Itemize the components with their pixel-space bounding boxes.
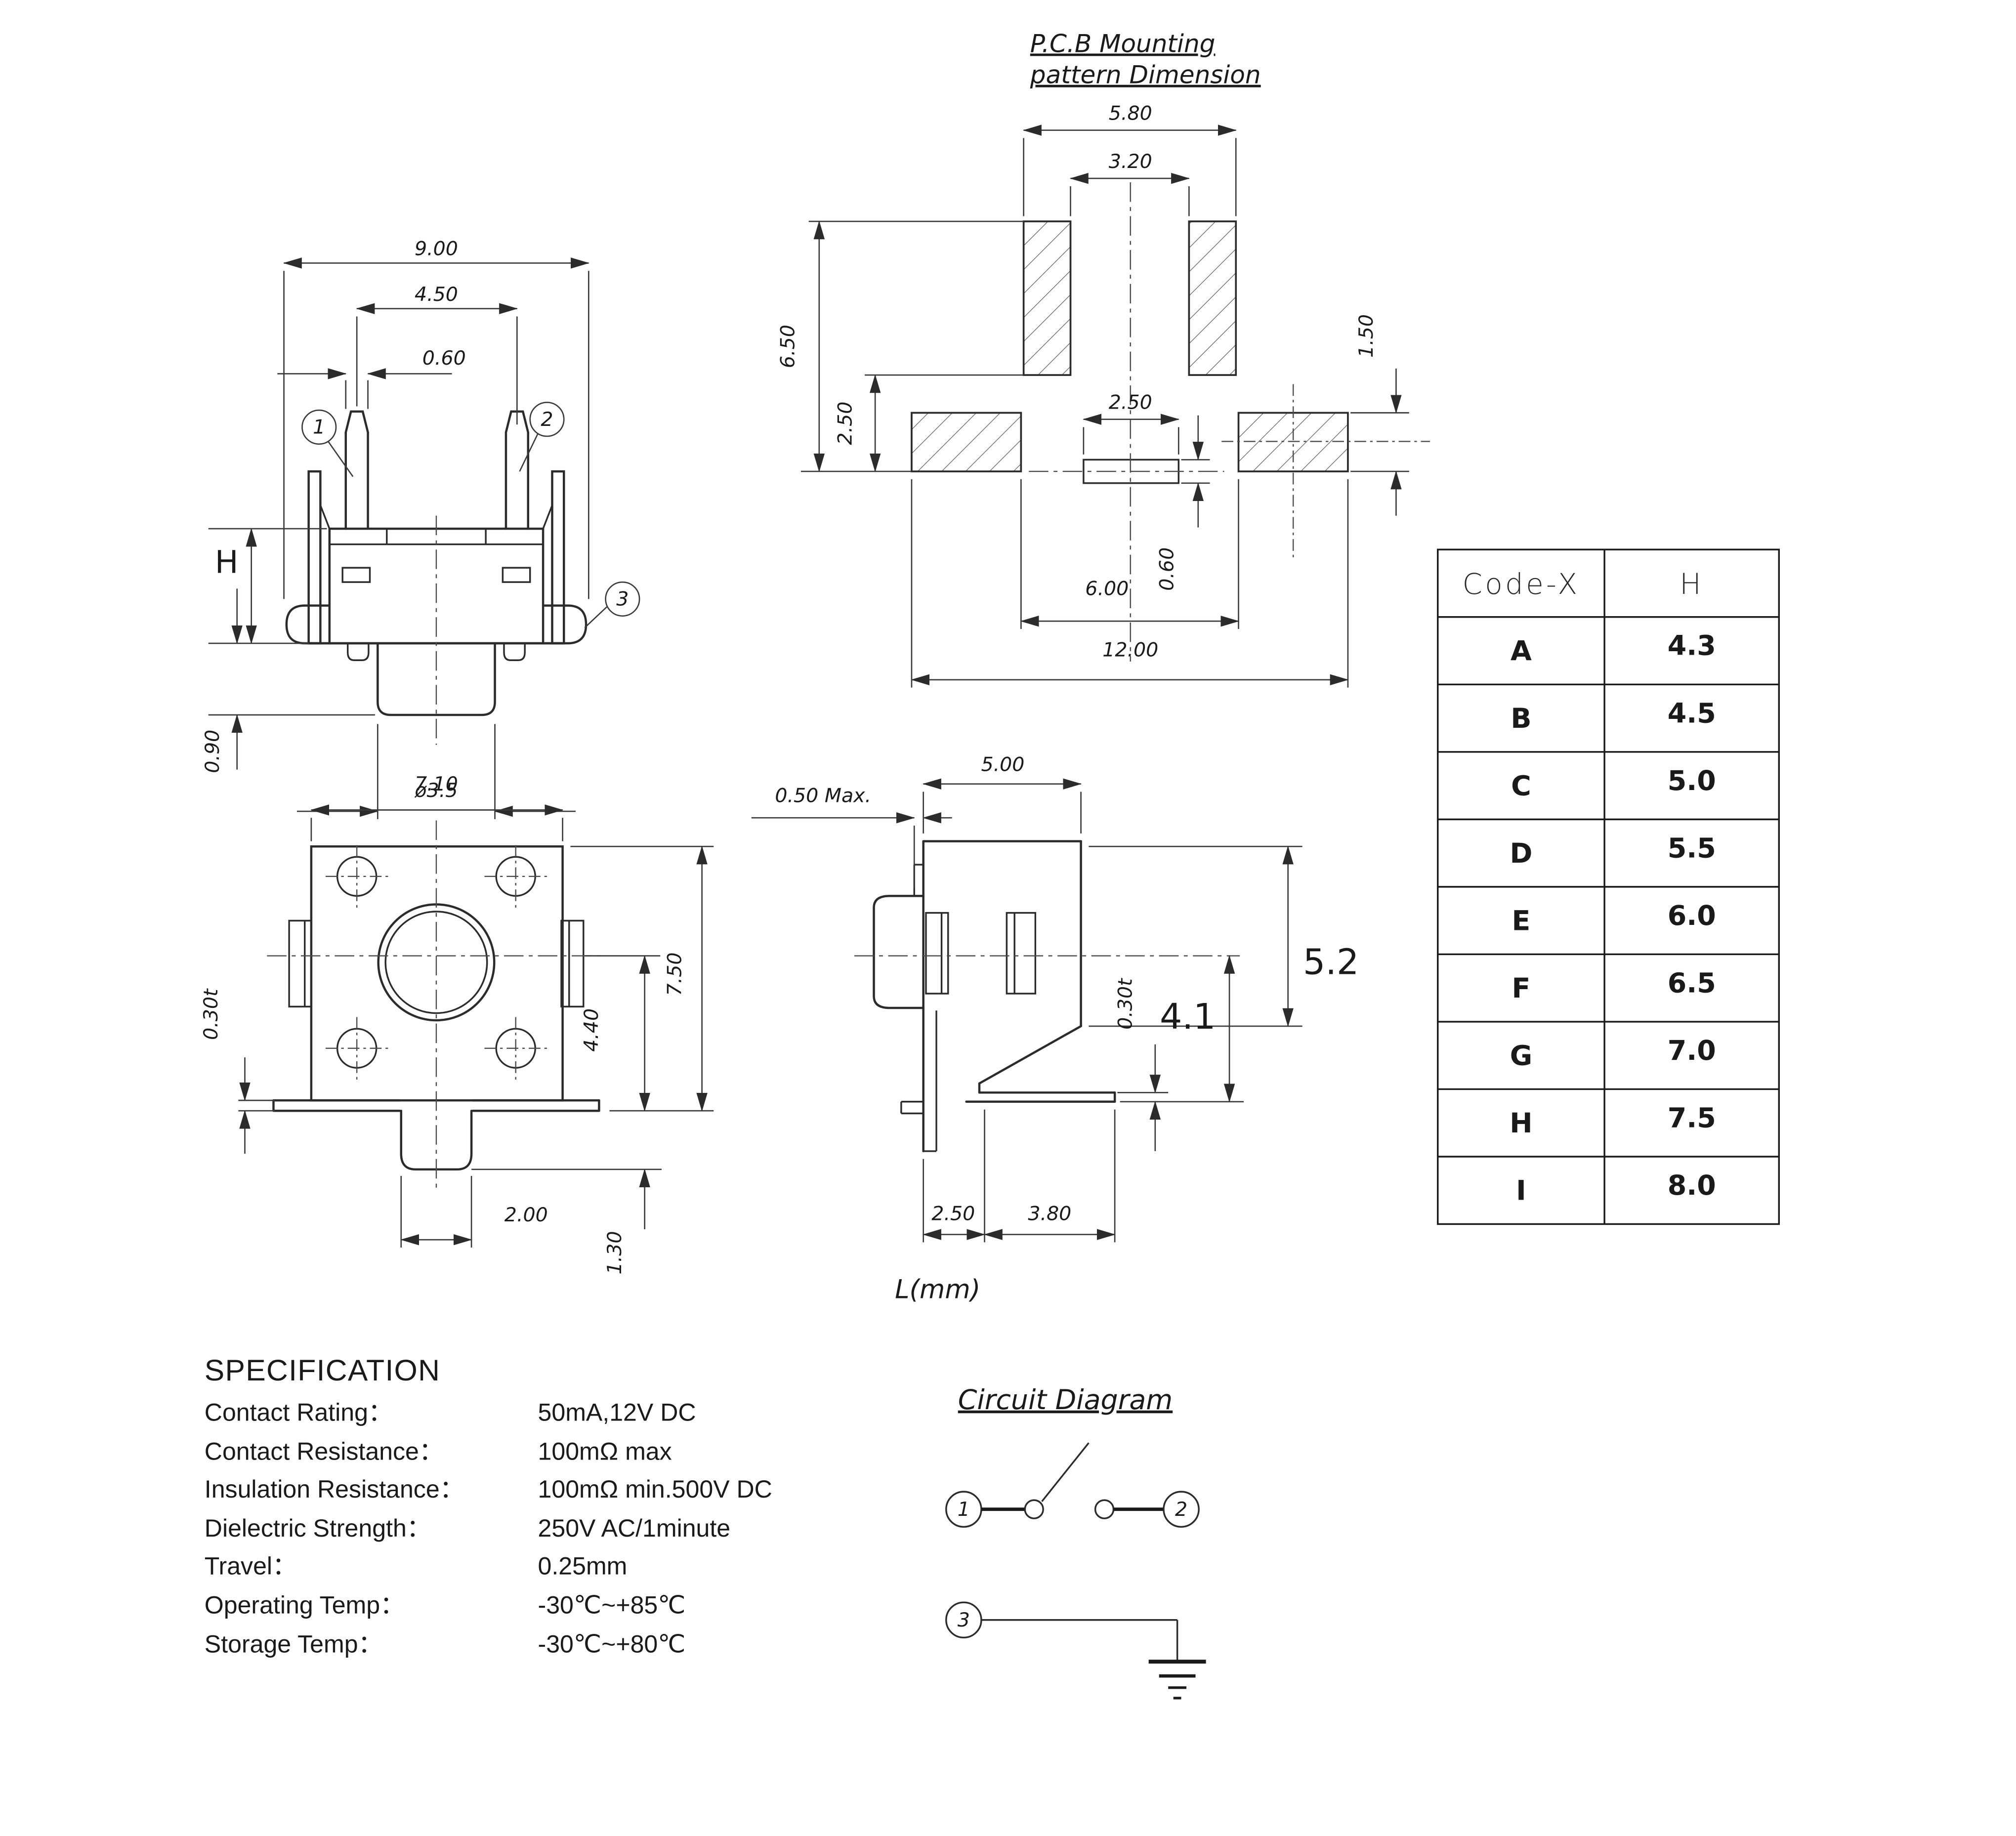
dim-foot-b: 3.80 — [1028, 1203, 1071, 1225]
bent-lead — [979, 1026, 1081, 1084]
switch-arm — [1042, 1443, 1089, 1502]
dim-center-to-edge: 4.40 — [580, 1008, 603, 1052]
svg-text:3: 3 — [616, 588, 629, 611]
pad-top-right — [1189, 221, 1236, 375]
svg-text:5.0: 5.0 — [1668, 765, 1716, 797]
dim-lip: 0.50 Max. — [775, 785, 871, 807]
dim-overall-width: 9.00 — [415, 238, 458, 260]
svg-text:C: C — [1511, 770, 1531, 802]
dim-total-height: 5.2 — [1303, 941, 1359, 982]
svg-text:G: G — [1510, 1040, 1532, 1072]
spec-value: -30℃~+80℃ — [538, 1630, 686, 1658]
svg-text:4.5: 4.5 — [1668, 698, 1716, 729]
dim-pad-inner: 3.20 — [1109, 150, 1152, 173]
contact-throw — [1095, 1500, 1114, 1518]
dim-span-outer: 12.00 — [1102, 638, 1158, 661]
pad-side-right — [1239, 413, 1348, 472]
dim-pin-width: 0.60 — [422, 347, 466, 370]
circuit-title: Circuit Diagram — [958, 1384, 1173, 1416]
dim-side-plate: 0.30t — [1114, 978, 1136, 1030]
bracket-right — [552, 471, 564, 643]
table-header-h: H — [1680, 567, 1704, 601]
top-body — [311, 846, 563, 1100]
spec-label: Storage Temp： — [205, 1630, 383, 1658]
pcb-mounting-pattern: P.C.B Mounting pattern Dimension 5.80 3.… — [777, 29, 1430, 687]
spec-value: 100mΩ max — [538, 1438, 672, 1465]
dim-center-height: 4.1 — [1160, 996, 1216, 1037]
spec-label: Contact Rating： — [205, 1398, 393, 1426]
svg-text:4.3: 4.3 — [1668, 630, 1716, 662]
dim-slot-width: 2.50 — [1109, 391, 1152, 414]
dim-foot-a: 2.50 — [931, 1203, 975, 1225]
svg-text:1: 1 — [313, 416, 325, 439]
svg-text:6.5: 6.5 — [1668, 967, 1716, 999]
spec-value: -30℃~+85℃ — [538, 1591, 686, 1619]
dim-side-width: 5.00 — [981, 753, 1024, 776]
dim-slot-height: 0.60 — [1156, 547, 1178, 591]
spec-value: 50mA,12V DC — [538, 1398, 696, 1426]
dim-stem-height: 0.90 — [201, 730, 224, 773]
pcb-title-line2: pattern Dimension — [1030, 61, 1261, 89]
front-view: 9.00 4.50 0.60 H 0.90 ø3.5 1 — [201, 238, 639, 819]
specification: SPECIFICATION Contact Rating： 50mA,12V D… — [205, 1353, 772, 1658]
spec-title: SPECIFICATION — [205, 1353, 440, 1387]
spec-label: Operating Temp： — [205, 1591, 405, 1619]
table-rows: A4.3 B4.5 C5.0 D5.5 E6.0 F6.5 G7.0 H7.5 … — [1510, 630, 1716, 1207]
pad-top-left — [1024, 221, 1071, 375]
dim-plate-thickness: 0.30t — [200, 988, 222, 1040]
svg-text:A: A — [1511, 635, 1532, 667]
spec-value: 250V AC/1minute — [538, 1514, 731, 1542]
pcb-title-line1: P.C.B Mounting — [1030, 29, 1216, 58]
spec-value: 0.25mm — [538, 1552, 628, 1580]
spec-value: 100mΩ min.500V DC — [538, 1475, 772, 1503]
spec-label: Contact Resistance： — [205, 1438, 444, 1465]
dim-tab-depth: 1.30 — [603, 1231, 626, 1275]
svg-text:7.0: 7.0 — [1668, 1035, 1716, 1067]
svg-text:6.0: 6.0 — [1668, 900, 1716, 932]
svg-text:F: F — [1512, 973, 1531, 1004]
side-view: 0.50 Max. 5.00 5.2 4.1 0.30t 2.50 3.80 L… — [752, 753, 1359, 1304]
svg-text:2: 2 — [541, 408, 553, 431]
svg-text:D: D — [1510, 838, 1532, 870]
svg-text:H: H — [1510, 1108, 1532, 1139]
svg-text:8.0: 8.0 — [1668, 1170, 1716, 1202]
table-header-code: Code-X — [1463, 567, 1580, 601]
dim-span-inner: 6.00 — [1085, 577, 1129, 600]
side-button — [874, 896, 924, 1008]
top-view: 7.10 0.30t 7.50 4.40 2.00 1.30 — [200, 773, 714, 1275]
spec-label: Dielectric Strength： — [205, 1514, 431, 1542]
svg-text:7.5: 7.5 — [1668, 1102, 1716, 1134]
dim-pad-gap: 2.50 — [834, 402, 857, 445]
dim-pin-pitch: 4.50 — [415, 283, 458, 306]
circuit-diagram: Circuit Diagram 1 2 3 — [946, 1384, 1206, 1698]
svg-text:E: E — [1512, 905, 1531, 937]
dim-top-width: 7.10 — [415, 773, 458, 795]
bracket-left — [309, 471, 321, 643]
contact-pole — [1025, 1500, 1043, 1518]
pad-side-left — [912, 413, 1021, 472]
pin-2 — [506, 412, 528, 529]
svg-text:1: 1 — [958, 1498, 970, 1521]
dim-side-pad-height: 1.50 — [1355, 314, 1378, 358]
spec-label: Insulation Resistance： — [205, 1475, 464, 1503]
technical-drawing-sheet: 9.00 4.50 0.60 H 0.90 ø3.5 1 — [0, 0, 2016, 1836]
svg-text:B: B — [1511, 703, 1531, 735]
spec-label: Travel： — [205, 1552, 297, 1580]
svg-text:5.5: 5.5 — [1668, 833, 1716, 864]
svg-text:I: I — [1516, 1175, 1526, 1207]
dim-height-h: H — [215, 544, 239, 581]
dim-top-height: 7.50 — [663, 952, 686, 996]
dim-pad-outer: 5.80 — [1109, 102, 1152, 125]
ground-symbol — [1149, 1662, 1206, 1698]
unit-label: L(mm) — [895, 1275, 980, 1305]
dim-tab-width: 2.00 — [504, 1204, 548, 1226]
svg-text:3: 3 — [958, 1609, 970, 1631]
svg-text:2: 2 — [1175, 1498, 1187, 1521]
code-table: Code-X H A4.3 B4.5 C5.0 D5.5 E6.0 F6.5 G… — [1438, 549, 1779, 1224]
dim-height-total: 6.50 — [777, 325, 799, 368]
